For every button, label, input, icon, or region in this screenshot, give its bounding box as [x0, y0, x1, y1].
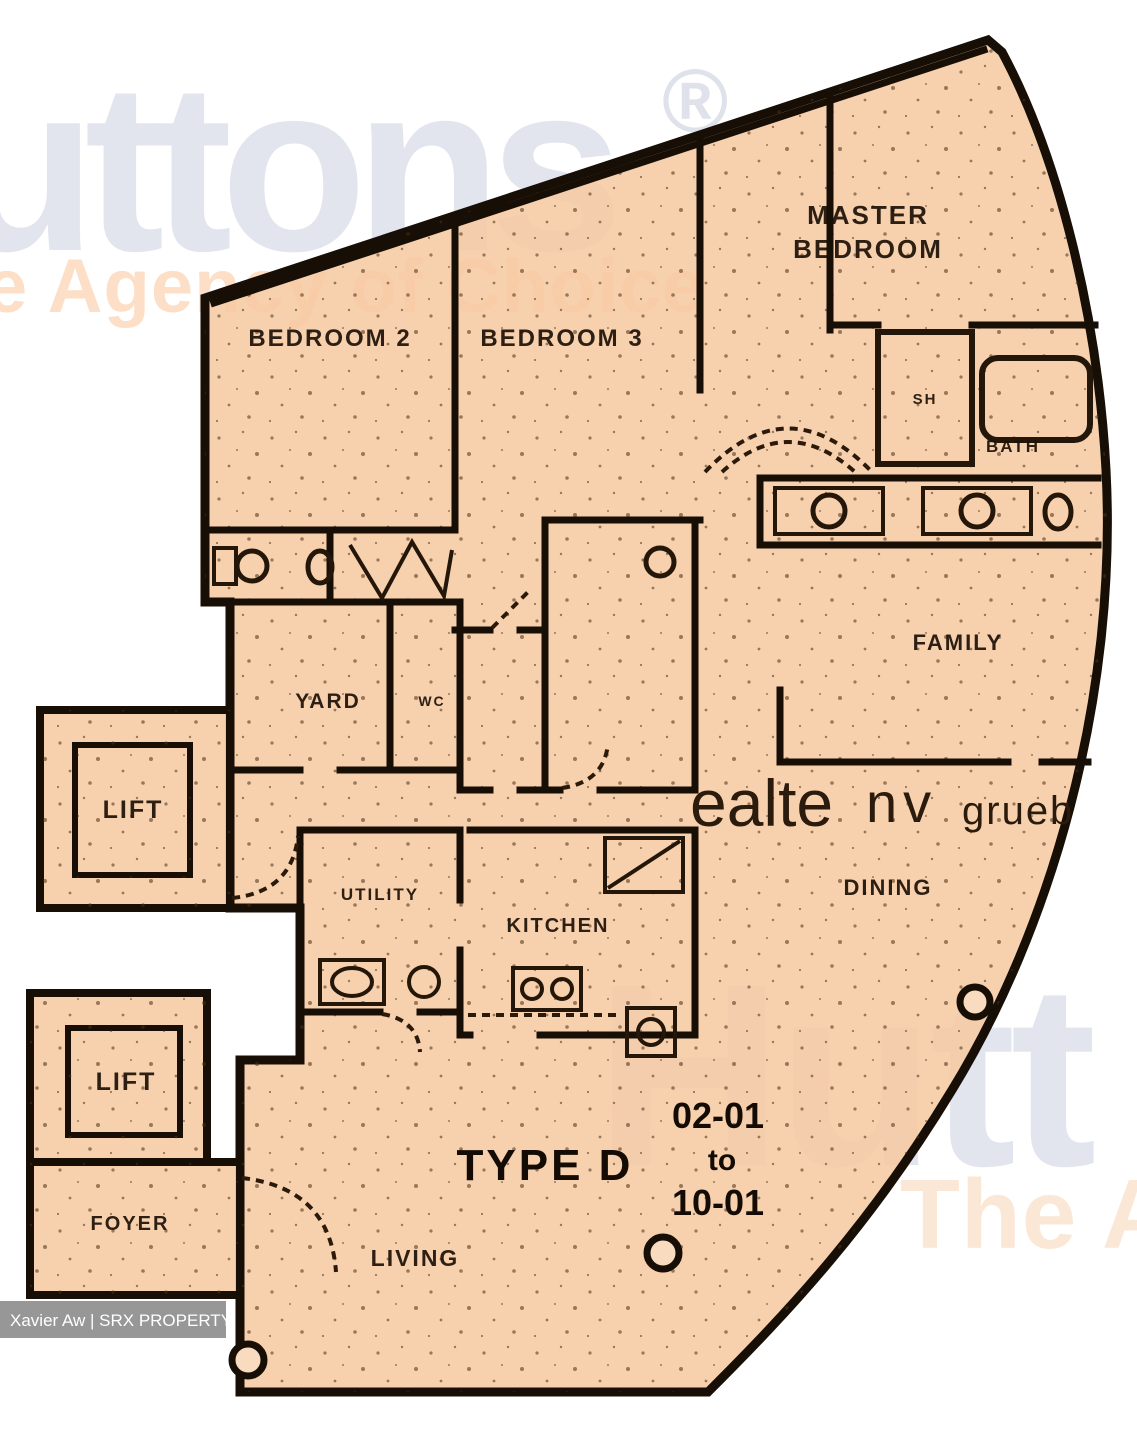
- unit-range-to: 10-01: [672, 1182, 764, 1223]
- label-utility: UTILITY: [341, 885, 419, 904]
- label-bedroom3: BEDROOM 3: [480, 325, 643, 352]
- label-dining: DINING: [844, 875, 933, 900]
- artifact-part3: grueb: [962, 789, 1074, 833]
- label-kitchen: KITCHEN: [507, 915, 610, 937]
- credit-bar: Xavier Aw | SRX PROPERTY: [0, 1301, 232, 1338]
- unit-range-connector: to: [708, 1144, 736, 1177]
- column-living: [647, 1237, 679, 1269]
- label-living: LIVING: [371, 1245, 460, 1271]
- label-master-bedroom-line1: MASTER: [807, 200, 929, 230]
- artifact-part2: nv: [866, 771, 937, 834]
- column-southwest: [232, 1344, 264, 1376]
- label-bedroom2: BEDROOM 2: [248, 325, 411, 352]
- floorplan-svg: uttons ® e Agency of Choice Hutt The Ag: [0, 0, 1137, 1440]
- label-family: FAMILY: [913, 630, 1004, 655]
- label-lift-upper: LIFT: [103, 796, 164, 824]
- label-bath: BATH: [986, 437, 1040, 456]
- watermark-tagline-bottom: The Ag: [900, 1159, 1137, 1269]
- label-wc: WC: [418, 693, 445, 709]
- artifact-part1: ealte: [690, 766, 833, 840]
- column-east: [960, 987, 990, 1017]
- floorplan-page: uttons ® e Agency of Choice Hutt The Ag: [0, 0, 1137, 1440]
- type-label: TYPE D: [457, 1141, 634, 1190]
- label-shower: SH: [913, 391, 938, 408]
- label-lift-lower: LIFT: [96, 1068, 157, 1096]
- unit-range-from: 02-01: [672, 1095, 764, 1136]
- credit-text: Xavier Aw | SRX PROPERTY: [10, 1311, 232, 1330]
- label-master-bedroom-line2: BEDROOM: [793, 234, 943, 264]
- label-yard: YARD: [295, 690, 361, 713]
- label-foyer: FOYER: [91, 1213, 170, 1235]
